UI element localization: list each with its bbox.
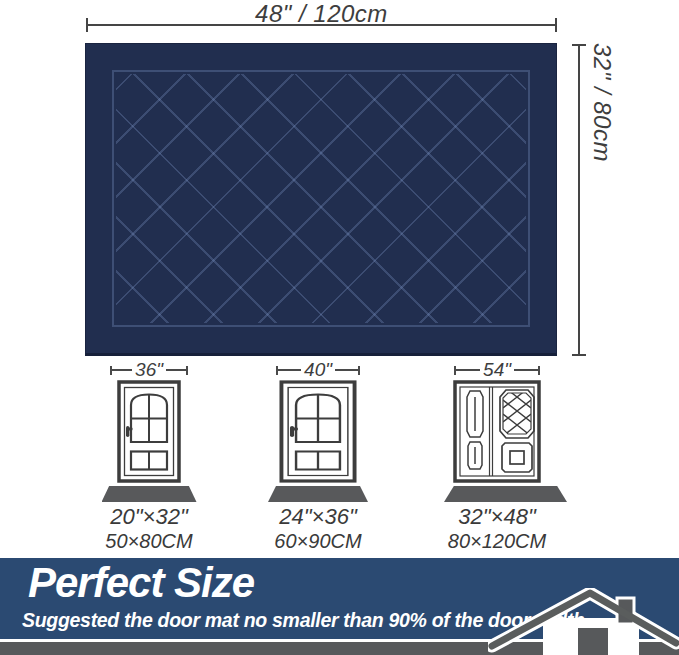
dim-end-tick [572, 354, 586, 356]
dim-end-tick [555, 18, 557, 32]
dim-line [278, 369, 301, 371]
mat-size-cm: 80×120CM [444, 530, 550, 553]
mat-size-inches: 32"×48" [444, 505, 550, 530]
product-size-infographic: 48" / 120cm 32" / 80cm 36" [0, 0, 679, 655]
dim-line [335, 369, 358, 371]
dim-tick [358, 366, 360, 375]
door-width-dimension: 40" [276, 361, 360, 379]
mat-size-cm: 50×80CM [99, 530, 199, 553]
height-dimension-line [578, 45, 580, 355]
mat-size-inches: 20"×32" [99, 505, 199, 530]
double-door-icon [453, 380, 541, 483]
mat-size-cm: 60×90CM [268, 530, 368, 553]
door-width-dimension: 54" [454, 361, 540, 379]
single-door-icon [279, 380, 357, 483]
width-dimension-line [87, 24, 556, 26]
door-option-36: 36" 20"×32" 50×80CM [99, 361, 199, 553]
door-option-54: 54" 32"×48" [444, 361, 550, 553]
doormat-icon [268, 486, 368, 502]
doormat-icon [444, 486, 567, 502]
doormat-product-image [85, 43, 557, 356]
door-width-label: 36" [132, 361, 166, 379]
single-door-icon [117, 380, 181, 483]
door-option-40: 40" 24"×36" 60×90CM [268, 361, 368, 553]
door-width-dimension: 36" [110, 361, 188, 379]
house-icon [488, 588, 679, 655]
dim-tick [186, 366, 188, 375]
mat-height-label: 32" / 80cm [588, 43, 616, 356]
dim-end-tick [86, 18, 88, 32]
mat-size-inches: 24"×36" [268, 505, 368, 530]
dim-line [166, 369, 186, 371]
door-width-label: 40" [301, 361, 335, 379]
dim-line [514, 369, 538, 371]
mat-inner-border [112, 70, 530, 327]
doormat-icon [102, 486, 197, 502]
dim-line [112, 369, 132, 371]
dim-end-tick [572, 44, 586, 46]
door-width-label: 54" [480, 361, 514, 379]
banner-title: Perfect Size [28, 560, 254, 606]
dim-tick [538, 366, 540, 375]
dim-line [456, 369, 480, 371]
